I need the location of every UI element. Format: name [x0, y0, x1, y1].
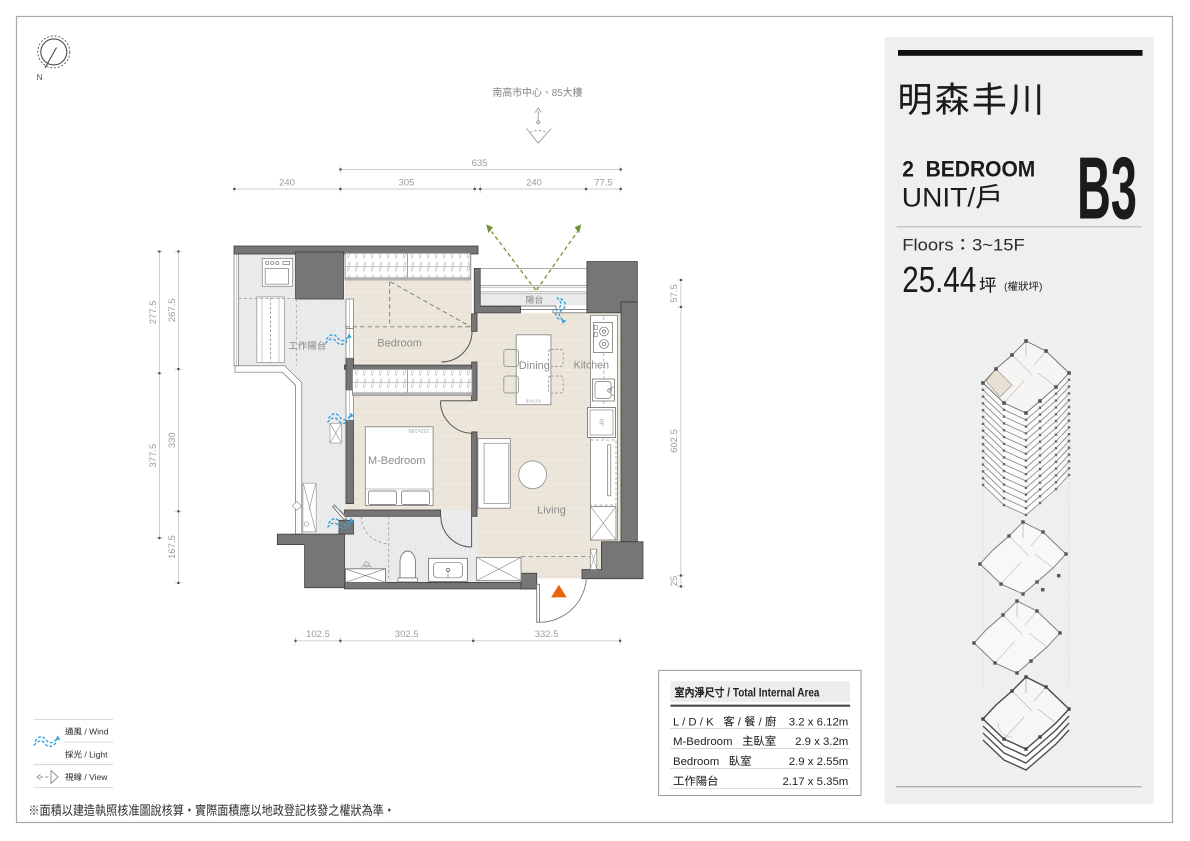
svg-text:267.5: 267.5: [167, 298, 178, 322]
svg-text:Living: Living: [537, 505, 566, 517]
svg-text:240: 240: [526, 178, 542, 189]
svg-text:635: 635: [472, 158, 488, 169]
svg-text:77.5: 77.5: [594, 178, 613, 189]
svg-text:2.9 x 3.2m: 2.9 x 3.2m: [795, 736, 848, 748]
svg-text:Dining: Dining: [519, 360, 550, 372]
svg-text:602.5: 602.5: [669, 429, 680, 453]
svg-text:※面積以建造執照核准圖說核算・實際面積應以地政登記核發之權狀: ※面積以建造執照核准圖說核算・實際面積應以地政登記核發之權狀為準・: [28, 800, 395, 819]
svg-text:N: N: [37, 72, 43, 82]
svg-text:377.5: 377.5: [148, 444, 159, 468]
svg-text:UNIT/戶: UNIT/戶: [902, 183, 1004, 213]
svg-text:330: 330: [167, 432, 178, 448]
svg-text:室內淨尺寸 / Total Internal Area: 室內淨尺寸 / Total Internal Area: [675, 685, 821, 701]
svg-text:2.9 x 2.55m: 2.9 x 2.55m: [789, 756, 849, 768]
svg-text:RF: RF: [598, 419, 604, 427]
svg-text:Floors：3~15F: Floors：3~15F: [902, 237, 1025, 255]
svg-text:3.2 x 6.12m: 3.2 x 6.12m: [789, 716, 849, 728]
svg-text:通風 / Wind: 通風 / Wind: [65, 726, 109, 738]
svg-text:Bedroom: Bedroom: [377, 338, 422, 350]
svg-text:25.44: 25.44: [902, 259, 976, 300]
svg-text:採光 / Light: 採光 / Light: [65, 748, 108, 760]
svg-text:Bedroom 臥室: Bedroom 臥室: [673, 753, 752, 769]
svg-text:57.5: 57.5: [669, 284, 680, 303]
svg-text:M-Bedroom 主臥室: M-Bedroom 主臥室: [673, 733, 776, 749]
svg-text:2 BEDROOM: 2 BEDROOM: [902, 157, 1035, 182]
svg-text:工作陽台: 工作陽台: [288, 338, 326, 352]
svg-text:305: 305: [399, 178, 415, 189]
svg-text:B3: B3: [1077, 139, 1137, 238]
svg-text:南高市中心、85大樓: 南高市中心、85大樓: [493, 85, 583, 100]
svg-text:(權狀坪): (權狀坪): [1004, 281, 1043, 293]
svg-text:102.5: 102.5: [306, 629, 330, 640]
svg-text:332.5: 332.5: [535, 629, 559, 640]
svg-text:152x186: 152x186: [408, 427, 429, 433]
svg-text:M-Bedroom: M-Bedroom: [368, 455, 425, 467]
svg-text:277.5: 277.5: [148, 301, 159, 325]
svg-text:167.5: 167.5: [167, 535, 178, 559]
svg-text:302.5: 302.5: [395, 629, 419, 640]
svg-text:L / D / K 客 / 餐 / 廚: L / D / K 客 / 餐 / 廚: [673, 713, 776, 729]
svg-text:工作陽台: 工作陽台: [673, 773, 719, 789]
svg-text:240: 240: [279, 178, 295, 189]
svg-text:陽台: 陽台: [525, 293, 543, 306]
svg-text:80x160: 80x160: [526, 398, 542, 404]
svg-text:Kitchen: Kitchen: [574, 360, 609, 372]
svg-text:2.17 x 5.35m: 2.17 x 5.35m: [782, 776, 848, 788]
svg-text:25: 25: [669, 576, 680, 587]
svg-text:坪: 坪: [979, 273, 997, 298]
svg-text:視線 / View: 視線 / View: [65, 771, 108, 783]
